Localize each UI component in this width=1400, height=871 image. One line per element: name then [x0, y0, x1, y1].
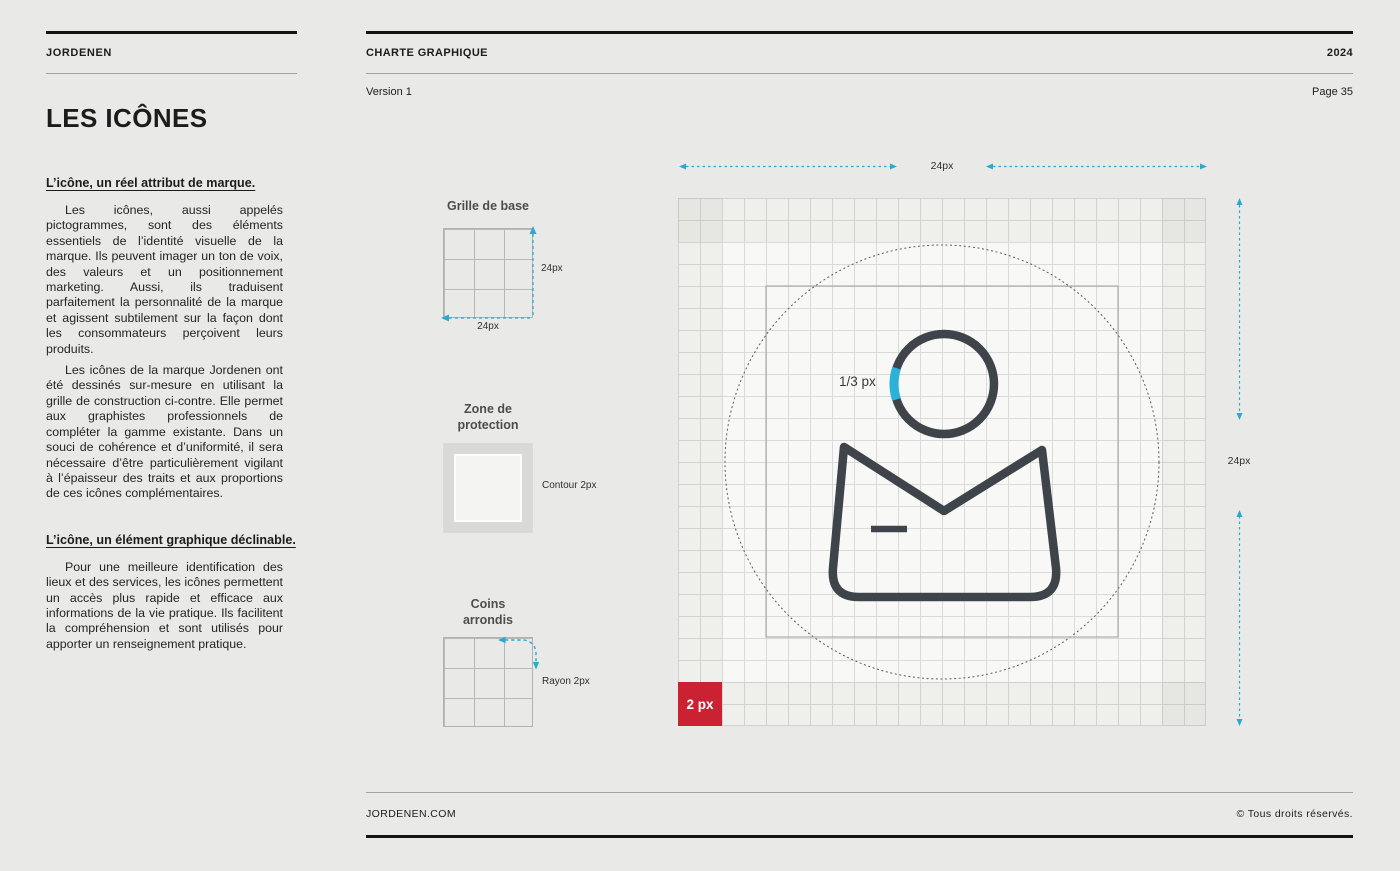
protection-inner-square — [454, 454, 522, 522]
right-dimension-label: 24px — [1219, 455, 1259, 467]
main-header: CHARTE GRAPHIQUE 2024 Version 1 Page 35 — [366, 31, 1353, 98]
doc-title: CHARTE GRAPHIQUE — [366, 47, 488, 59]
doc-version: Version 1 — [366, 86, 412, 98]
keyline-circle-icon — [725, 245, 1159, 679]
grid-unit-badge: 2 px — [678, 682, 722, 726]
user-body-icon — [833, 447, 1056, 597]
paragraph: Pour une meilleure identification des li… — [46, 560, 283, 652]
protection-title: Zone de protection — [420, 402, 556, 433]
section-heading-declinable: L’icône, un élément graphique déclinable… — [46, 533, 297, 547]
base-grid-dimension-arrows — [428, 221, 568, 333]
protection-diagram — [443, 443, 533, 533]
user-head-icon — [894, 334, 994, 434]
protection-label: Contour 2px — [542, 480, 596, 491]
footer-divider — [366, 792, 1353, 793]
sidebar-top-rule — [46, 31, 297, 34]
sidebar: JORDENEN LES ICÔNES L’icône, un réel att… — [46, 31, 297, 652]
brand-guidelines-page: JORDENEN LES ICÔNES L’icône, un réel att… — [0, 0, 1400, 871]
doc-year: 2024 — [1327, 47, 1353, 59]
live-area-square — [766, 286, 1118, 637]
stroke-width-label: 1/3 px — [839, 374, 876, 389]
paragraph: Les icônes, aussi appelés pictogrammes, … — [46, 203, 283, 357]
footer-bottom-rule — [366, 835, 1353, 838]
header-divider — [366, 73, 1353, 74]
header-top-rule — [366, 31, 1353, 34]
brand-name: JORDENEN — [46, 47, 297, 59]
corners-label: Rayon 2px — [542, 676, 590, 687]
base-grid-title: Grille de base — [420, 199, 556, 215]
corner-radius-arrow — [495, 629, 555, 675]
top-dimension-label: 24px — [897, 160, 987, 172]
page-title: LES ICÔNES — [46, 103, 297, 134]
base-grid-width-label: 24px — [443, 321, 533, 332]
base-grid-height-label: 24px — [541, 263, 563, 274]
footer-site: JORDENEN.COM — [366, 808, 456, 820]
page-number: Page 35 — [1312, 86, 1353, 98]
paragraph: Les icônes de la marque Jordenen ont été… — [46, 363, 283, 502]
sidebar-divider — [46, 73, 297, 74]
user-icon-construction — [678, 198, 1206, 726]
main-footer: JORDENEN.COM © Tous droits réservés. — [366, 792, 1353, 838]
icon-construction-grid: 1/3 px 2 px — [678, 198, 1206, 726]
section-heading-attribut: L’icône, un réel attribut de marque. — [46, 176, 297, 190]
footer-rights: © Tous droits réservés. — [1236, 808, 1353, 820]
corners-title: Coins arrondis — [420, 597, 556, 628]
